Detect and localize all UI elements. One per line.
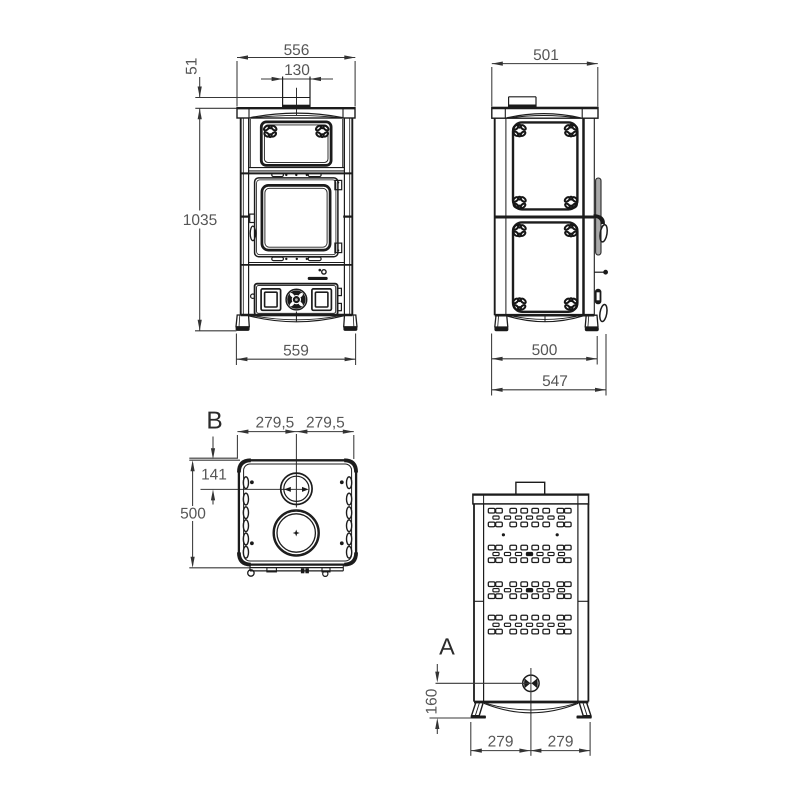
svg-text:279: 279 (488, 733, 514, 750)
svg-text:500: 500 (532, 342, 558, 359)
svg-text:160: 160 (424, 688, 441, 714)
svg-text:130: 130 (284, 62, 310, 79)
svg-text:556: 556 (284, 42, 310, 59)
svg-text:547: 547 (542, 373, 568, 390)
svg-text:279,5: 279,5 (306, 415, 345, 432)
svg-text:559: 559 (283, 343, 309, 360)
svg-text:A: A (439, 634, 455, 660)
svg-text:279,5: 279,5 (256, 415, 295, 432)
svg-text:51: 51 (184, 58, 201, 75)
svg-text:501: 501 (533, 47, 559, 64)
svg-text:141: 141 (201, 466, 227, 483)
svg-text:B: B (206, 408, 222, 435)
svg-text:500: 500 (180, 505, 206, 522)
svg-text:1035: 1035 (183, 212, 217, 229)
svg-text:279: 279 (548, 733, 574, 750)
